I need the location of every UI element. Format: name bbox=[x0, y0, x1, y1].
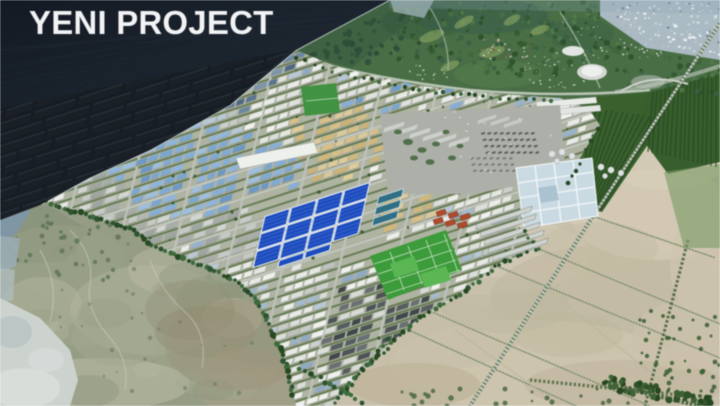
svg-text:YENI PROJECT: YENI PROJECT bbox=[29, 4, 273, 41]
